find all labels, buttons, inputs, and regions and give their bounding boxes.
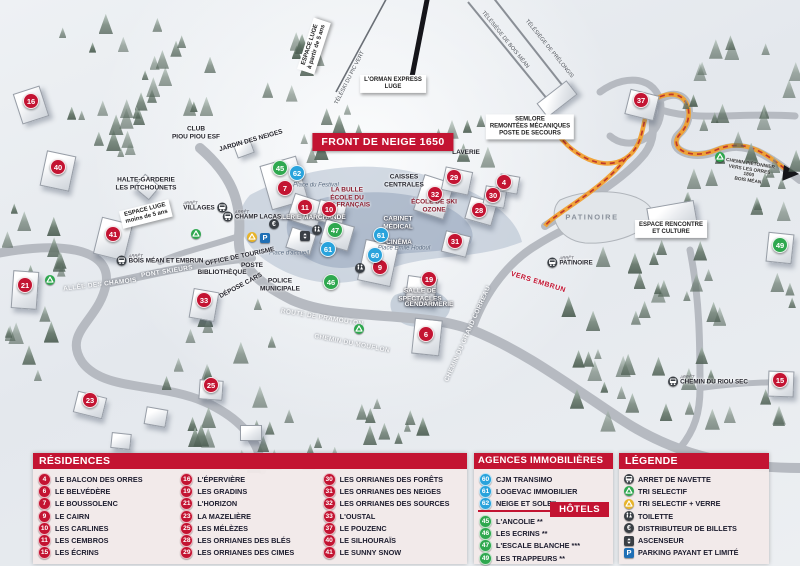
residence-item-19: 19LES GRADINS <box>180 485 322 497</box>
item-label: L'HORIZON <box>197 499 237 508</box>
map-label-place-emile-hodoul: Place Émile Hodoul <box>378 245 430 252</box>
item-number-badge: 61 <box>479 485 492 498</box>
item-label: NEIGE ET SOLEIL <box>496 499 558 508</box>
item-number-badge: 45 <box>479 515 492 528</box>
item-label: LE BALCON DES ORRES <box>55 475 143 484</box>
map-marker-47: 47 <box>327 222 343 238</box>
item-label: LA MAZELIÈRE <box>197 512 251 521</box>
map-label-club: CLUB PIOU PIOU ESF <box>172 125 220 140</box>
item-label: LES ORRIANES DES CIMES <box>197 548 294 557</box>
map-marker-28: 28 <box>471 202 487 218</box>
panel-legende: LÉGENDE ARRET DE NAVETTETRI SELECTIFTRI … <box>619 453 769 564</box>
item-label: ASCENSEUR <box>638 536 684 545</box>
building <box>240 425 262 441</box>
map-marker-21: 21 <box>17 277 33 293</box>
residence-item-15: 15LES ÉCRINS <box>38 547 180 559</box>
bus-stop-name: PATINOIRE <box>559 261 592 268</box>
map-marker-32: 32 <box>427 186 443 202</box>
residence-item-21: 21L'HORIZON <box>180 498 322 510</box>
residences-list: 4LE BALCON DES ORRES6LE BELVÉDÈRE7LE BOU… <box>38 473 465 560</box>
map-marker-49: 49 <box>772 237 788 253</box>
resort-map: SEMLORE REMONTÉES MÉCANIQUES POSTE DE SE… <box>0 0 800 566</box>
item-label: LE POUZENC <box>340 524 387 533</box>
hotel-item-47: 47L'ESCALE BLANCHE *** <box>479 540 611 552</box>
residence-item-23: 23LA MAZELIÈRE <box>180 510 322 522</box>
map-marker-15: 15 <box>772 372 788 388</box>
residence-item-28: 28LES ORRIANES DES BLÉS <box>180 534 322 546</box>
item-label: LE SUNNY SNOW <box>340 548 402 557</box>
item-label: L'ESCALE BLANCHE *** <box>496 541 580 550</box>
panel-agences-title: AGENCES IMMOBILIÈRES <box>474 453 613 469</box>
map-label-cabinet: CABINET MÉDICAL <box>383 215 413 230</box>
bus-stop-name: CHEMIN DU RIOU SEC <box>680 380 748 387</box>
map-label-semlore: SEMLORE REMONTÉES MÉCANIQUES POSTE DE SE… <box>486 114 574 139</box>
map-label-police: POLICE MUNICIPALE <box>260 277 300 292</box>
map-marker-62: 62 <box>289 165 305 181</box>
map-label-laverie: LAVERIE <box>452 149 480 157</box>
legende-item-arret-de-navette: ARRET DE NAVETTE <box>624 473 767 485</box>
bus-icon <box>117 255 127 265</box>
item-label: LE BELVÉDÈRE <box>55 487 110 496</box>
map-marker-16: 16 <box>23 93 39 109</box>
bus-icon <box>223 211 233 221</box>
map-marker-37: 37 <box>633 92 649 108</box>
item-number-badge: 19 <box>180 485 193 498</box>
item-number-badge: 15 <box>38 546 51 559</box>
recycle-green-icon <box>45 275 55 285</box>
agence-item-60: 60CJM TRANSIMO <box>479 473 611 485</box>
recycle-yellow-icon <box>624 499 634 509</box>
residence-item-33: 33L'OUSTAL <box>323 510 465 522</box>
item-label: L'ANCOLIE ** <box>496 517 543 526</box>
panel-residences-title: RÉSIDENCES <box>33 453 467 469</box>
item-number-badge: 30 <box>323 473 336 486</box>
residence-item-9: 9LE CAIRN <box>38 510 180 522</box>
euro-icon: € <box>269 219 279 229</box>
item-number-badge: 40 <box>323 534 336 547</box>
item-label: LOGEVAC IMMOBILIER <box>496 487 577 496</box>
item-label: CJM TRANSIMO <box>496 475 552 484</box>
map-marker-11: 11 <box>297 199 313 215</box>
map-marker-23: 23 <box>82 392 98 408</box>
bus-icon <box>547 257 557 267</box>
residence-item-6: 6LE BELVÉDÈRE <box>38 485 180 497</box>
map-label-halte-garderie: HALTE-GARDERIE LES PITCHOUNETS <box>115 176 176 191</box>
panel-hotels-title: HÔTELS <box>550 502 609 517</box>
item-number-badge: 62 <box>479 497 492 510</box>
residence-item-4: 4LE BALCON DES ORRES <box>38 473 180 485</box>
map-marker-19: 19 <box>421 271 437 287</box>
panel-residences: RÉSIDENCES 4LE BALCON DES ORRES6LE BELVÉ… <box>33 453 467 564</box>
elevator-icon <box>300 231 310 241</box>
item-number-badge: 31 <box>323 485 336 498</box>
bus-stop-villages: ARRÊTVILLAGES <box>183 201 227 212</box>
residence-item-37: 37LE POUZENC <box>323 522 465 534</box>
recycle-green-icon <box>191 229 201 239</box>
bus-stop-text: ARRÊTVILLAGES <box>183 201 215 212</box>
map-marker-10: 10 <box>321 201 337 217</box>
bus-icon <box>668 376 678 386</box>
map-label-galerie-marchande: GALERIE MARCHANDE <box>272 214 345 222</box>
item-number-badge: 23 <box>180 510 193 523</box>
item-label: LES MÉLÈZES <box>197 524 248 533</box>
residence-item-11: 11LES CEMBROS <box>38 534 180 546</box>
residence-item-16: 16L'ÉPERVIÈRE <box>180 473 322 485</box>
bus-stop-name: BOIS MÉAN ET EMBRUN <box>129 259 204 266</box>
residence-item-10: 10LES CARLINES <box>38 522 180 534</box>
panel-agences: AGENCES IMMOBILIÈRES 60CJM TRANSIMO61LOG… <box>474 453 613 564</box>
map-label-patinoire: PATINOIRE <box>565 214 618 223</box>
map-marker-25: 25 <box>203 377 219 393</box>
building <box>110 432 132 450</box>
map-label-caisses: CAISSES CENTRALES <box>384 173 424 188</box>
item-label: LES ECRINS ** <box>496 529 548 538</box>
item-number-badge: 29 <box>180 546 193 559</box>
bus-stop-chemin-du-riou-sec: ARRÊTCHEMIN DU RIOU SEC <box>668 375 748 386</box>
map-marker-29: 29 <box>446 169 462 185</box>
item-number-badge: 9 <box>38 510 51 523</box>
item-label: L'ÉPERVIÈRE <box>197 475 245 484</box>
item-label: ARRET DE NAVETTE <box>638 475 711 484</box>
item-number-badge: 49 <box>479 552 492 565</box>
item-label: DISTRIBUTEUR DE BILLETS <box>638 524 737 533</box>
legende-item-parking-payant-et-limite: PPARKING PAYANT ET LIMITÉ <box>624 547 767 559</box>
legende-list: ARRET DE NAVETTETRI SELECTIFTRI SELECTIF… <box>624 473 767 562</box>
map-marker-7: 7 <box>277 180 293 196</box>
legende-item-tri-selectif-verre: TRI SELECTIF + VERRE <box>624 498 767 510</box>
item-number-badge: 46 <box>479 527 492 540</box>
item-label: LE SILHOURAÏS <box>340 536 396 545</box>
parking-icon: P <box>624 548 634 558</box>
item-label: LES ORRIANES DES SOURCES <box>340 499 450 508</box>
map-marker-60: 60 <box>367 247 383 263</box>
toilet-icon <box>355 263 365 273</box>
map-label-gendarmerie: GENDARMERIE <box>405 301 454 309</box>
map-label-bibliotheque: BIBLIOTHÈQUE <box>197 269 246 277</box>
residence-item-41: 41LE SUNNY SNOW <box>323 547 465 559</box>
bus-icon <box>624 474 634 484</box>
item-label: LES ÉCRINS <box>55 548 99 557</box>
legende-item-distributeur-de-billets: €DISTRIBUTEUR DE BILLETS <box>624 522 767 534</box>
toilet-icon <box>312 225 322 235</box>
recycle-green-icon <box>715 152 725 162</box>
legende-item-ascenseur: ASCENSEUR <box>624 534 767 546</box>
building <box>144 406 169 428</box>
hotel-item-46: 46LES ECRINS ** <box>479 527 611 539</box>
item-number-badge: 11 <box>38 534 51 547</box>
item-label: TRI SELECTIF + VERRE <box>638 499 721 508</box>
map-marker-46: 46 <box>323 274 339 290</box>
bus-stop-text: ARRÊTPATINOIRE <box>559 256 592 267</box>
item-number-badge: 33 <box>323 510 336 523</box>
map-marker-33: 33 <box>196 292 212 308</box>
bus-stop-patinoire: ARRÊTPATINOIRE <box>547 256 592 267</box>
item-number-badge: 16 <box>180 473 193 486</box>
item-label: LES CEMBROS <box>55 536 109 545</box>
front-de-neige-banner: FRONT DE NEIGE 1650 <box>312 133 453 151</box>
residence-item-29: 29LES ORRIANES DES CIMES <box>180 547 322 559</box>
item-number-badge: 4 <box>38 473 51 486</box>
map-marker-45: 45 <box>272 160 288 176</box>
item-label: LE BOUSSOLENC <box>55 499 118 508</box>
item-number-badge: 10 <box>38 522 51 535</box>
panel-legende-title: LÉGENDE <box>619 453 769 469</box>
item-label: PARKING PAYANT ET LIMITÉ <box>638 548 739 557</box>
recycle-green-icon <box>624 486 634 496</box>
map-marker-31: 31 <box>447 233 463 249</box>
item-label: LES ORRIANES DES FORÊTS <box>340 475 443 484</box>
elevator-icon <box>624 536 634 546</box>
map-marker-30: 30 <box>485 187 501 203</box>
item-label: TOILETTE <box>638 512 673 521</box>
item-number-badge: 25 <box>180 522 193 535</box>
map-marker-40: 40 <box>50 159 66 175</box>
residence-item-7: 7LE BOUSSOLENC <box>38 498 180 510</box>
item-number-badge: 6 <box>38 485 51 498</box>
recycle-green-icon <box>354 324 364 334</box>
bus-stop-bois-mean-et-embrun: ARRÊTBOIS MÉAN ET EMBRUN <box>117 254 204 265</box>
residence-item-30: 30LES ORRIANES DES FORÊTS <box>323 473 465 485</box>
item-label: L'OUSTAL <box>340 512 376 521</box>
legende-item-toilette: TOILETTE <box>624 510 767 522</box>
item-number-badge: 60 <box>479 473 492 486</box>
map-marker-61: 61 <box>320 241 336 257</box>
item-number-badge: 47 <box>479 539 492 552</box>
map-marker-61: 61 <box>373 227 389 243</box>
euro-icon: € <box>624 523 634 533</box>
residence-item-25: 25LES MÉLÈZES <box>180 522 322 534</box>
item-label: LES TRAPPEURS ** <box>496 554 565 563</box>
map-label-l-orman-express: L'ORMAN EXPRESS LUGE <box>360 75 426 93</box>
map-marker-6: 6 <box>418 326 434 342</box>
item-label: LES ORRIANES DES NEIGES <box>340 487 441 496</box>
item-number-badge: 28 <box>180 534 193 547</box>
item-number-badge: 21 <box>180 497 193 510</box>
item-number-badge: 7 <box>38 497 51 510</box>
bus-stop-text: ARRÊTCHEMIN DU RIOU SEC <box>680 375 748 386</box>
item-label: LES GRADINS <box>197 487 247 496</box>
residence-item-31: 31LES ORRIANES DES NEIGES <box>323 485 465 497</box>
toilet-icon <box>624 511 634 521</box>
map-marker-41: 41 <box>105 226 121 242</box>
hotel-item-49: 49LES TRAPPEURS ** <box>479 552 611 564</box>
hotels-list: 45L'ANCOLIE **46LES ECRINS **47L'ESCALE … <box>479 515 611 564</box>
item-label: LES ORRIANES DES BLÉS <box>197 536 290 545</box>
item-number-badge: 32 <box>323 497 336 510</box>
bus-stop-text: ARRÊTBOIS MÉAN ET EMBRUN <box>129 254 204 265</box>
item-label: TRI SELECTIF <box>638 487 687 496</box>
agence-item-61: 61LOGEVAC IMMOBILIER <box>479 485 611 497</box>
map-label-espace-rencontre: ESPACE RENCONTRE ET CULTURE <box>635 220 707 238</box>
item-number-badge: 41 <box>323 546 336 559</box>
item-number-badge: 37 <box>323 522 336 535</box>
residence-item-40: 40LE SILHOURAÏS <box>323 534 465 546</box>
item-label: LE CAIRN <box>55 512 89 521</box>
item-label: LES CARLINES <box>55 524 109 533</box>
legende-item-tri-selectif: TRI SELECTIF <box>624 485 767 497</box>
recycle-yellow-icon <box>247 232 257 242</box>
map-marker-4: 4 <box>496 174 512 190</box>
residence-item-32: 32LES ORRIANES DES SOURCES <box>323 498 465 510</box>
parking-icon: P <box>260 233 270 243</box>
bus-stop-name: VILLAGES <box>183 206 215 213</box>
